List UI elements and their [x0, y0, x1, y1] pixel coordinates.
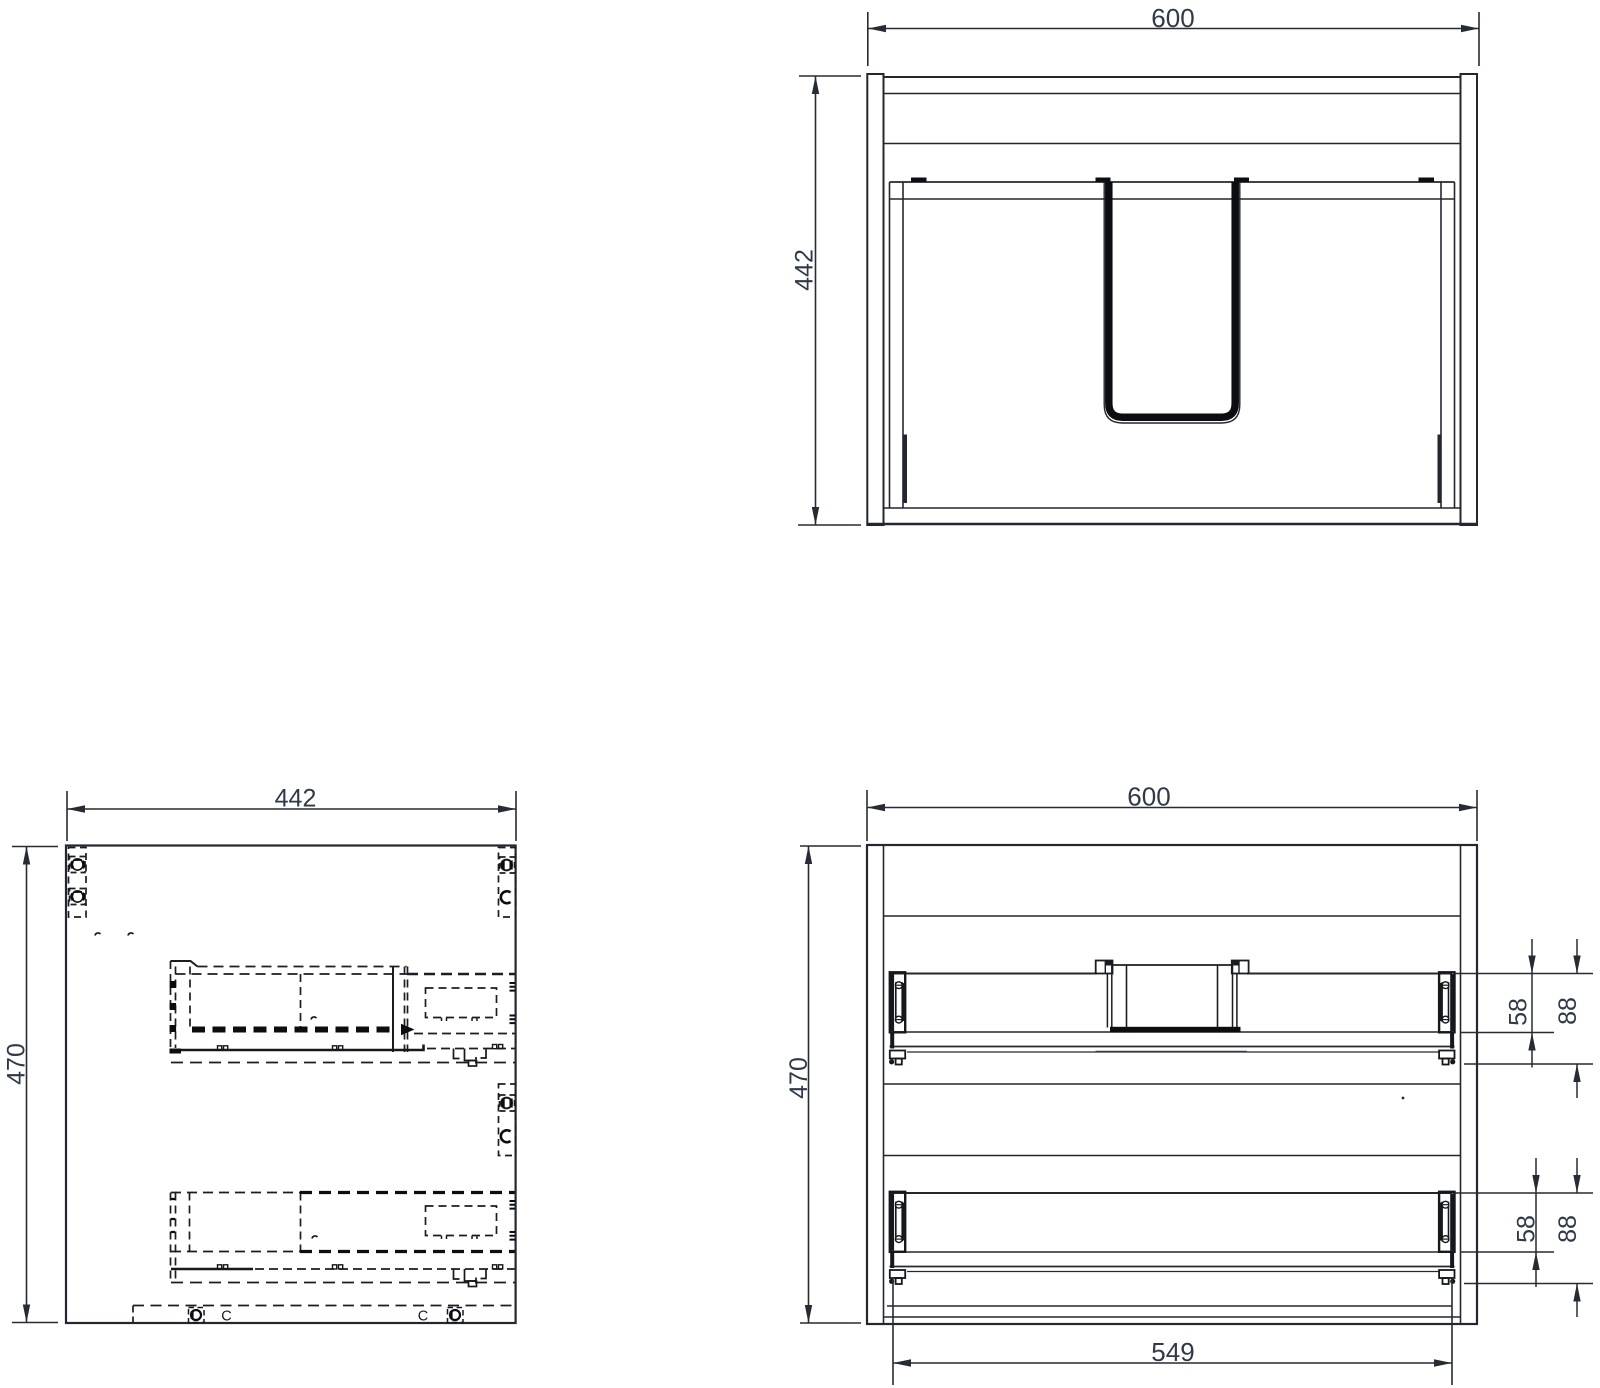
svg-text:600: 600	[1151, 3, 1194, 33]
svg-text:442: 442	[275, 785, 317, 813]
svg-text:C: C	[221, 1309, 231, 1325]
svg-text:470: 470	[785, 1057, 813, 1099]
svg-text:88: 88	[1554, 997, 1582, 1025]
svg-text:442: 442	[791, 249, 819, 291]
svg-text:C: C	[418, 1309, 428, 1325]
svg-text:549: 549	[1151, 1337, 1194, 1367]
svg-text:58: 58	[1513, 1215, 1541, 1243]
svg-text:470: 470	[3, 1043, 31, 1085]
svg-text:88: 88	[1554, 1215, 1582, 1243]
svg-text:58: 58	[1505, 998, 1533, 1026]
svg-text:600: 600	[1127, 782, 1170, 812]
